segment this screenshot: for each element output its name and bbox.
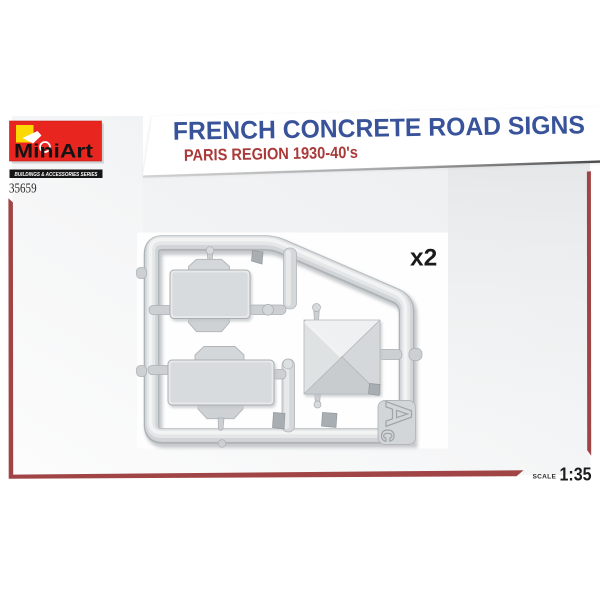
svg-text:PARIS REGION 1930-40's: PARIS REGION 1930-40's xyxy=(184,144,358,165)
svg-text:35659: 35659 xyxy=(9,181,37,196)
svg-text:c: c xyxy=(377,429,403,442)
svg-text:MiniArt: MiniArt xyxy=(14,142,94,163)
svg-text:BUILDINGS & ACCESSORIES SERIES: BUILDINGS & ACCESSORIES SERIES xyxy=(15,172,98,178)
svg-text:SCALE: SCALE xyxy=(533,473,557,480)
svg-text:A: A xyxy=(378,401,419,428)
svg-text:x2: x2 xyxy=(410,244,437,271)
svg-text:1:35: 1:35 xyxy=(560,463,592,484)
